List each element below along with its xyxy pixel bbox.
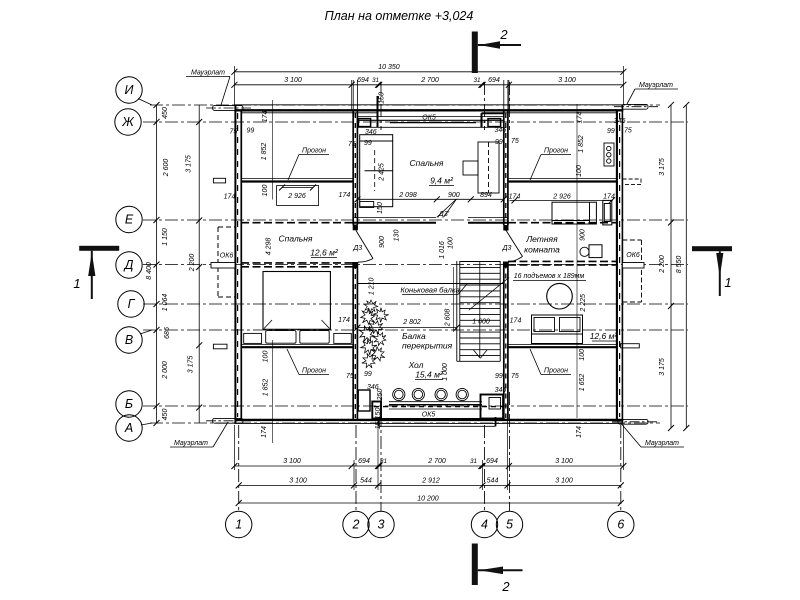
svg-text:3 175: 3 175 [659,158,666,176]
svg-text:2 802: 2 802 [402,319,421,326]
svg-text:Спальня: Спальня [410,158,444,168]
svg-text:2 608: 2 608 [445,309,452,328]
svg-text:Мауэрлат: Мауэрлат [639,82,673,89]
svg-text:12,6 м²: 12,6 м² [310,248,339,258]
svg-text:Летняя: Летняя [525,234,558,244]
svg-text:900: 900 [448,192,460,199]
svg-text:99: 99 [364,371,372,378]
svg-text:3 100: 3 100 [289,478,307,485]
svg-text:346: 346 [614,118,626,125]
svg-text:250: 250 [377,389,384,402]
svg-text:75: 75 [511,138,519,145]
svg-text:900: 900 [580,229,587,241]
svg-text:3 175: 3 175 [186,155,193,173]
svg-text:2 700: 2 700 [420,77,439,84]
svg-text:31: 31 [470,458,477,465]
svg-text:3 100: 3 100 [283,458,301,465]
svg-text:2 912: 2 912 [421,478,440,485]
svg-text:Прогон: Прогон [544,148,568,155]
svg-text:План на отметке +3,024: План на отметке +3,024 [325,9,474,23]
svg-text:2 700: 2 700 [427,458,446,465]
svg-text:100: 100 [579,349,586,361]
svg-text:99: 99 [364,140,372,147]
svg-text:9,4 м²: 9,4 м² [430,176,454,186]
svg-text:1: 1 [724,275,731,290]
svg-text:Мауэрлат: Мауэрлат [645,440,679,447]
svg-text:3 175: 3 175 [659,358,666,376]
svg-text:1 064: 1 064 [162,294,169,312]
svg-text:174: 174 [339,192,351,199]
svg-text:346: 346 [365,129,377,136]
svg-text:694: 694 [357,77,369,84]
svg-text:174: 174 [262,111,269,123]
svg-text:А: А [124,421,133,435]
svg-text:10 350: 10 350 [378,64,400,71]
svg-text:450: 450 [162,107,169,119]
svg-text:Д3: Д3 [502,245,512,252]
svg-text:1 150: 1 150 [162,228,169,246]
svg-text:75: 75 [346,373,354,380]
svg-text:Г: Г [128,297,136,311]
svg-text:150: 150 [375,408,382,420]
svg-text:Прогон: Прогон [302,148,326,155]
svg-text:2: 2 [501,579,510,594]
svg-text:100: 100 [448,237,455,249]
svg-text:1: 1 [73,276,80,291]
svg-text:150: 150 [375,418,382,430]
svg-text:1: 1 [235,518,242,532]
svg-text:Хол: Хол [408,360,424,370]
svg-text:544: 544 [487,478,499,485]
svg-text:2 000: 2 000 [162,361,169,380]
svg-text:15,4 м²: 15,4 м² [415,370,444,380]
svg-text:150: 150 [378,92,385,104]
svg-text:8 400: 8 400 [146,262,153,280]
svg-text:174: 174 [338,317,350,324]
svg-text:694: 694 [486,458,498,465]
svg-text:1 852: 1 852 [263,379,270,397]
svg-text:2 225: 2 225 [580,294,587,313]
svg-text:Д3': Д3' [438,211,450,218]
svg-text:ОК5: ОК5 [422,114,436,121]
svg-text:174: 174 [509,193,521,200]
svg-text:Спальня: Спальня [279,234,313,244]
svg-text:2 200: 2 200 [659,255,666,274]
svg-text:900: 900 [379,236,386,248]
svg-text:2 200: 2 200 [189,254,196,273]
svg-text:174: 174 [224,194,236,201]
svg-text:2 926: 2 926 [287,193,306,200]
svg-text:ОК6: ОК6 [220,253,234,260]
svg-text:16 подъемов х 189мм: 16 подъемов х 189мм [514,272,585,280]
svg-text:31: 31 [380,458,387,465]
svg-text:Коньковая балка: Коньковая балка [400,286,459,295]
svg-text:2: 2 [352,518,360,532]
svg-text:1 600: 1 600 [472,319,490,326]
svg-text:75: 75 [511,373,519,380]
svg-text:31: 31 [473,77,480,84]
svg-text:1 016: 1 016 [439,241,446,259]
svg-text:1 852: 1 852 [578,135,585,153]
svg-text:3 100: 3 100 [284,77,302,84]
svg-text:4 298: 4 298 [266,238,273,256]
svg-text:8 550: 8 550 [676,256,683,274]
svg-text:75: 75 [230,129,238,136]
svg-text:31: 31 [372,77,379,84]
svg-text:Мауэрлат: Мауэрлат [191,70,225,77]
svg-text:174: 174 [261,426,268,438]
svg-text:Б: Б [125,397,133,411]
svg-text:694: 694 [358,458,370,465]
svg-text:174: 174 [577,112,584,124]
svg-text:В: В [125,333,133,347]
svg-text:75: 75 [624,128,632,135]
svg-text:12,6 м²: 12,6 м² [590,331,619,341]
svg-text:100: 100 [262,185,269,197]
svg-text:Ж: Ж [121,115,135,129]
svg-text:3 100: 3 100 [558,77,576,84]
svg-text:2 926: 2 926 [552,193,571,200]
svg-text:ОК6: ОК6 [626,252,640,259]
svg-text:99: 99 [495,139,503,146]
svg-text:3: 3 [378,518,385,532]
svg-text:3 175: 3 175 [187,356,194,374]
svg-text:Д3: Д3 [352,245,362,252]
svg-text:174: 174 [603,193,615,200]
svg-text:3 100: 3 100 [555,478,573,485]
svg-text:Балка: Балка [402,331,426,341]
svg-text:5: 5 [506,518,513,532]
svg-text:1 000: 1 000 [442,363,449,381]
svg-text:1 210: 1 210 [369,277,376,295]
svg-text:10 200: 10 200 [417,496,439,503]
svg-text:544: 544 [360,478,372,485]
svg-text:Прогон: Прогон [302,368,326,375]
svg-text:Мауэрлат: Мауэрлат [174,440,208,447]
svg-text:4: 4 [481,518,488,532]
svg-text:2 600: 2 600 [163,159,170,178]
svg-text:6: 6 [617,518,624,532]
svg-text:100: 100 [263,351,270,363]
svg-text:450: 450 [162,409,169,421]
svg-text:Е: Е [125,213,134,227]
svg-text:346: 346 [495,127,507,134]
svg-text:Прогон: Прогон [544,368,568,375]
svg-text:686: 686 [164,327,171,339]
svg-text:3 100: 3 100 [555,458,573,465]
svg-text:1 852: 1 852 [261,143,268,161]
svg-text:2: 2 [499,27,508,42]
svg-text:99: 99 [247,128,255,135]
svg-text:130: 130 [394,230,401,242]
svg-text:Д: Д [123,258,134,272]
svg-text:1 652: 1 652 [579,374,586,392]
svg-text:комната: комната [524,245,560,255]
svg-text:перекрытия: перекрытия [402,341,453,351]
svg-text:75: 75 [348,141,356,148]
svg-text:2 425: 2 425 [379,163,386,182]
svg-text:ОК5: ОК5 [422,411,436,418]
svg-text:99: 99 [607,128,615,135]
svg-text:И: И [125,83,134,97]
svg-text:2 098: 2 098 [398,192,417,199]
svg-text:174: 174 [510,318,522,325]
svg-text:694: 694 [488,77,500,84]
svg-text:174: 174 [576,426,583,438]
svg-text:99: 99 [495,373,503,380]
svg-text:346: 346 [495,387,507,394]
svg-text:150: 150 [377,202,384,214]
